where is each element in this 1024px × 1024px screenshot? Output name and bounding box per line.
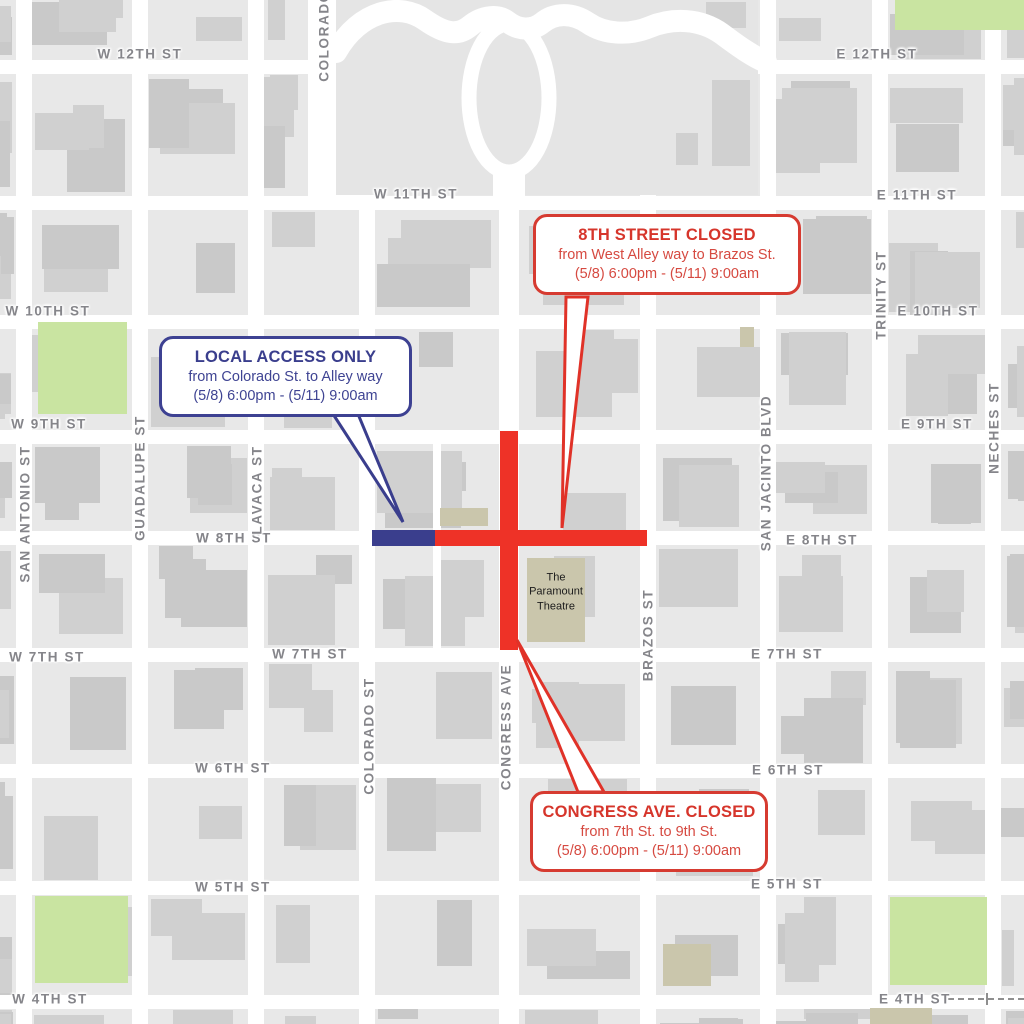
leader-congress-ave	[517, 640, 604, 792]
street-closure-map: The Paramount Theatre W 12TH ST E 12TH S…	[0, 0, 1024, 1024]
callout-schedule: (5/8) 6:00pm - (5/11) 9:00am	[541, 842, 757, 861]
callout-congress-ave-closed: CONGRESS AVE. CLOSED from 7th St. to 9th…	[530, 791, 768, 872]
callout-leaders	[0, 0, 1024, 1024]
callout-8th-street-closed: 8TH STREET CLOSED from West Alley way to…	[533, 214, 801, 295]
callout-title: 8TH STREET CLOSED	[544, 224, 790, 246]
callout-title: LOCAL ACCESS ONLY	[170, 346, 401, 368]
callout-extent: from West Alley way to Brazos St.	[544, 246, 790, 265]
callout-extent: from 7th St. to 9th St.	[541, 823, 757, 842]
leader-8th-street	[562, 297, 588, 528]
callout-title: CONGRESS AVE. CLOSED	[541, 801, 757, 823]
callout-local-access-only: LOCAL ACCESS ONLY from Colorado St. to A…	[159, 336, 412, 417]
callout-schedule: (5/8) 6:00pm - (5/11) 9:00am	[170, 387, 401, 406]
callout-extent: from Colorado St. to Alley way	[170, 368, 401, 387]
callout-schedule: (5/8) 6:00pm - (5/11) 9:00am	[544, 265, 790, 284]
leader-local-access	[333, 414, 403, 522]
